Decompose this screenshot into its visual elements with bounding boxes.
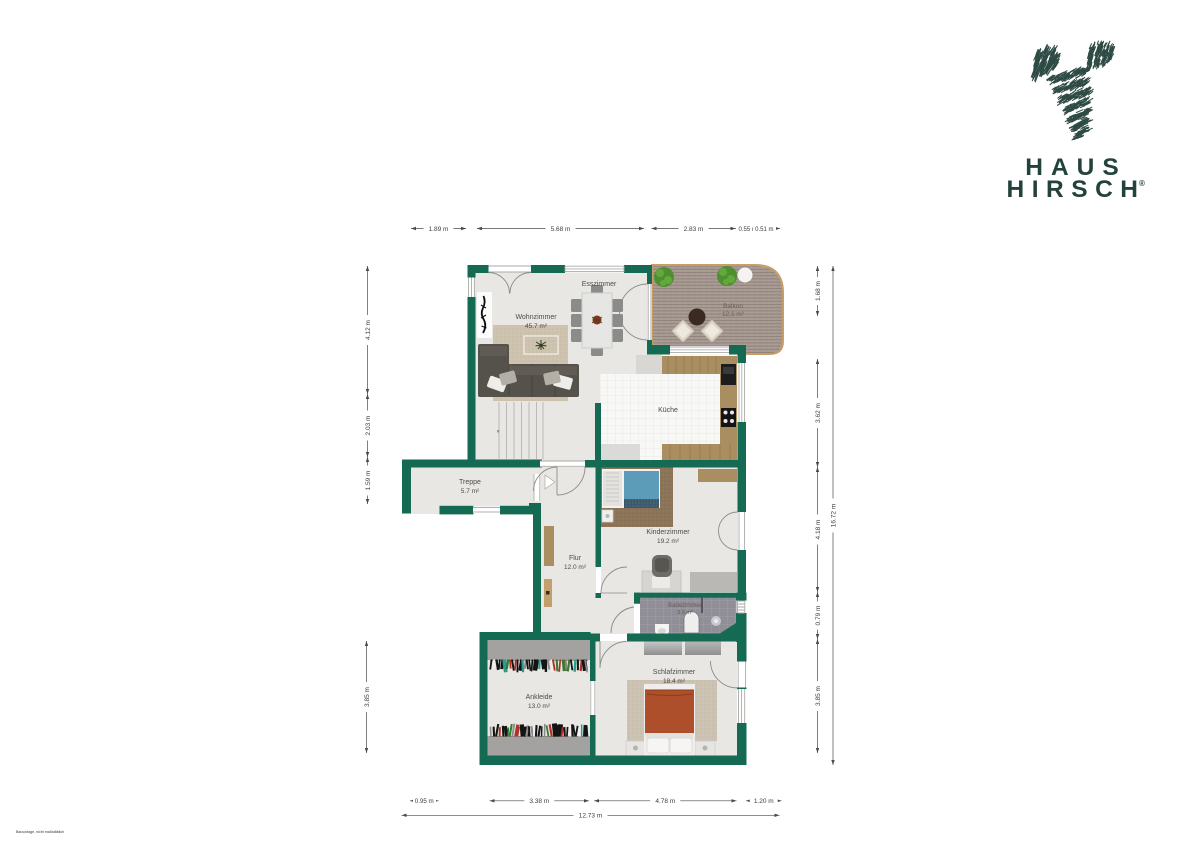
svg-text:1.89 m: 1.89 m <box>429 226 449 233</box>
svg-text:3.62 m: 3.62 m <box>815 403 822 423</box>
svg-text:19.2 m²: 19.2 m² <box>657 538 680 545</box>
svg-text:4.12 m: 4.12 m <box>365 320 372 340</box>
svg-text:5.68 m: 5.68 m <box>551 226 571 233</box>
svg-text:Küche: Küche <box>658 407 678 414</box>
svg-text:Esszimmer: Esszimmer <box>582 281 617 288</box>
svg-text:3.38 m: 3.38 m <box>529 798 549 805</box>
svg-text:18.4 m²: 18.4 m² <box>663 678 686 685</box>
svg-text:16.72 m: 16.72 m <box>830 504 837 528</box>
svg-text:Treppe: Treppe <box>459 479 481 486</box>
svg-text:0.95 m: 0.95 m <box>415 798 434 805</box>
svg-text:Ankleide: Ankleide <box>526 694 553 701</box>
svg-text:45.7 m²: 45.7 m² <box>525 323 548 330</box>
svg-text:2.03 m: 2.03 m <box>365 416 372 436</box>
svg-text:1.68 m: 1.68 m <box>815 281 822 301</box>
svg-text:Kinderzimmer: Kinderzimmer <box>646 529 690 536</box>
svg-text:12.73 m: 12.73 m <box>579 813 603 820</box>
svg-text:0.55 ı 0.51 m: 0.55 ı 0.51 m <box>738 227 773 233</box>
svg-text:4.78 m: 4.78 m <box>655 798 675 805</box>
svg-text:0.79 m: 0.79 m <box>815 606 822 626</box>
svg-text:12.1 m²: 12.1 m² <box>722 311 745 318</box>
svg-text:®: ® <box>1139 179 1145 188</box>
svg-text:Badezimmer: Badezimmer <box>668 603 702 609</box>
svg-text:1.59 m: 1.59 m <box>365 471 372 491</box>
svg-text:12.0 m²: 12.0 m² <box>564 564 587 571</box>
svg-text:13.0 m²: 13.0 m² <box>528 703 551 710</box>
svg-text:1.20 m: 1.20 m <box>754 798 774 805</box>
svg-text:4.18 m: 4.18 m <box>815 520 822 540</box>
svg-text:Balkon: Balkon <box>723 303 743 310</box>
svg-text:HIRSCH: HIRSCH <box>1007 176 1146 203</box>
svg-text:2.83 m: 2.83 m <box>684 226 704 233</box>
svg-text:Wohnzimmer: Wohnzimmer <box>515 314 557 321</box>
svg-text:5.7 m²: 5.7 m² <box>461 488 480 495</box>
svg-text:3.85 m: 3.85 m <box>364 687 371 707</box>
svg-text:Schlafzimmer: Schlafzimmer <box>653 669 696 676</box>
svg-text:3.85 m: 3.85 m <box>815 686 822 706</box>
svg-text:3.9 m²: 3.9 m² <box>677 610 693 616</box>
svg-text:Flur: Flur <box>569 555 582 562</box>
svg-text:Bauvorlage, nicht maßstäblich: Bauvorlage, nicht maßstäblich <box>16 830 64 834</box>
